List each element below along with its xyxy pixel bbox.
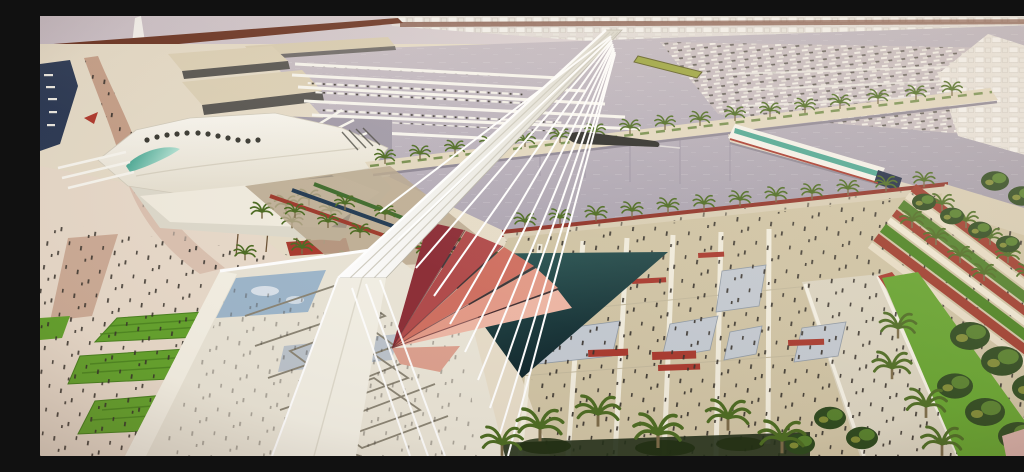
architectural-model-photo: [40, 16, 1024, 456]
photo-vignette: [40, 16, 1024, 456]
